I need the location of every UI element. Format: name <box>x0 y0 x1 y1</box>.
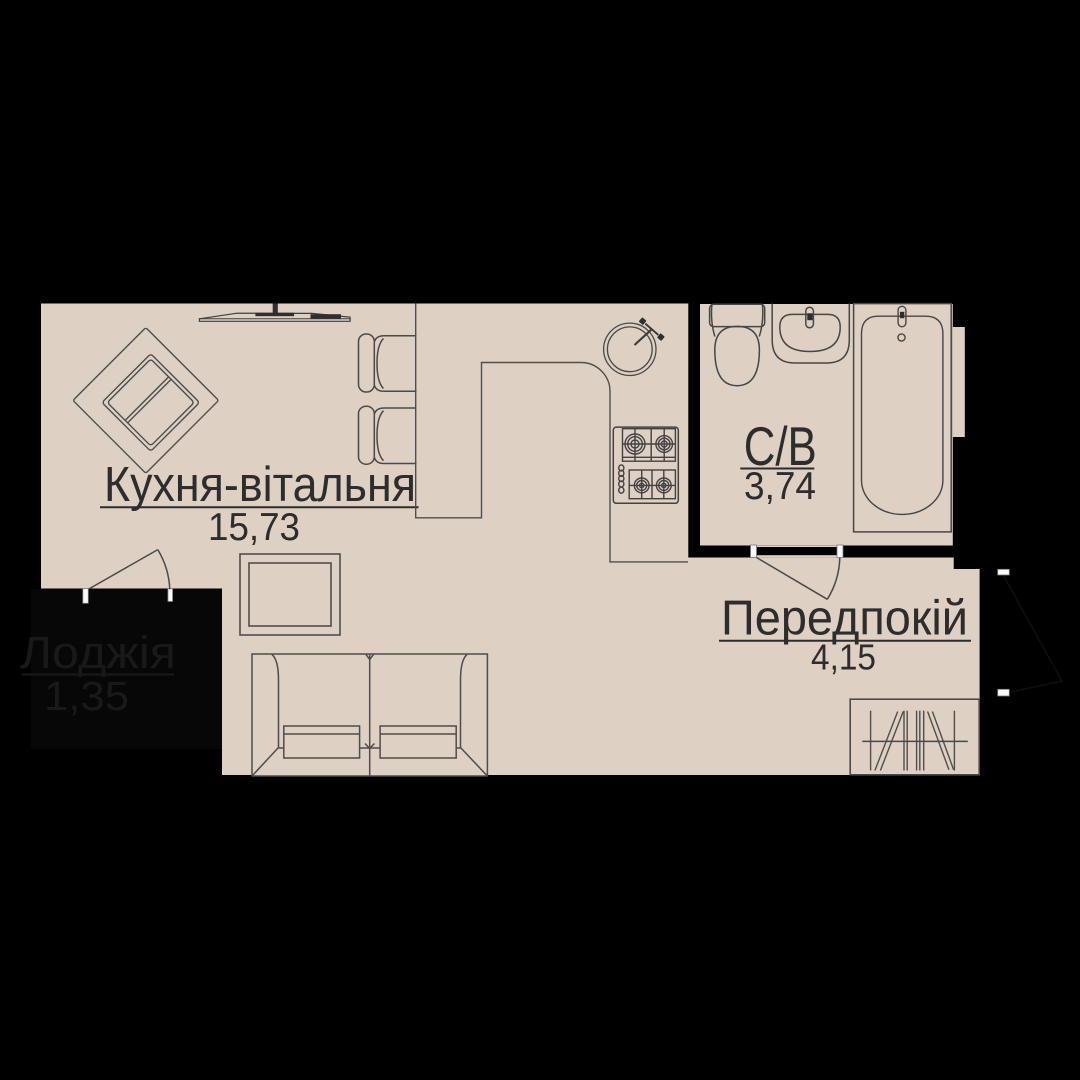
svg-text:4,15: 4,15 <box>811 637 876 678</box>
svg-text:15,73: 15,73 <box>208 506 300 549</box>
svg-text:3,74: 3,74 <box>744 465 816 508</box>
svg-text:Лоджія: Лоджія <box>20 627 176 678</box>
svg-text:1,35: 1,35 <box>44 673 129 719</box>
svg-text:Кухня-вітальня: Кухня-вітальня <box>104 458 416 512</box>
